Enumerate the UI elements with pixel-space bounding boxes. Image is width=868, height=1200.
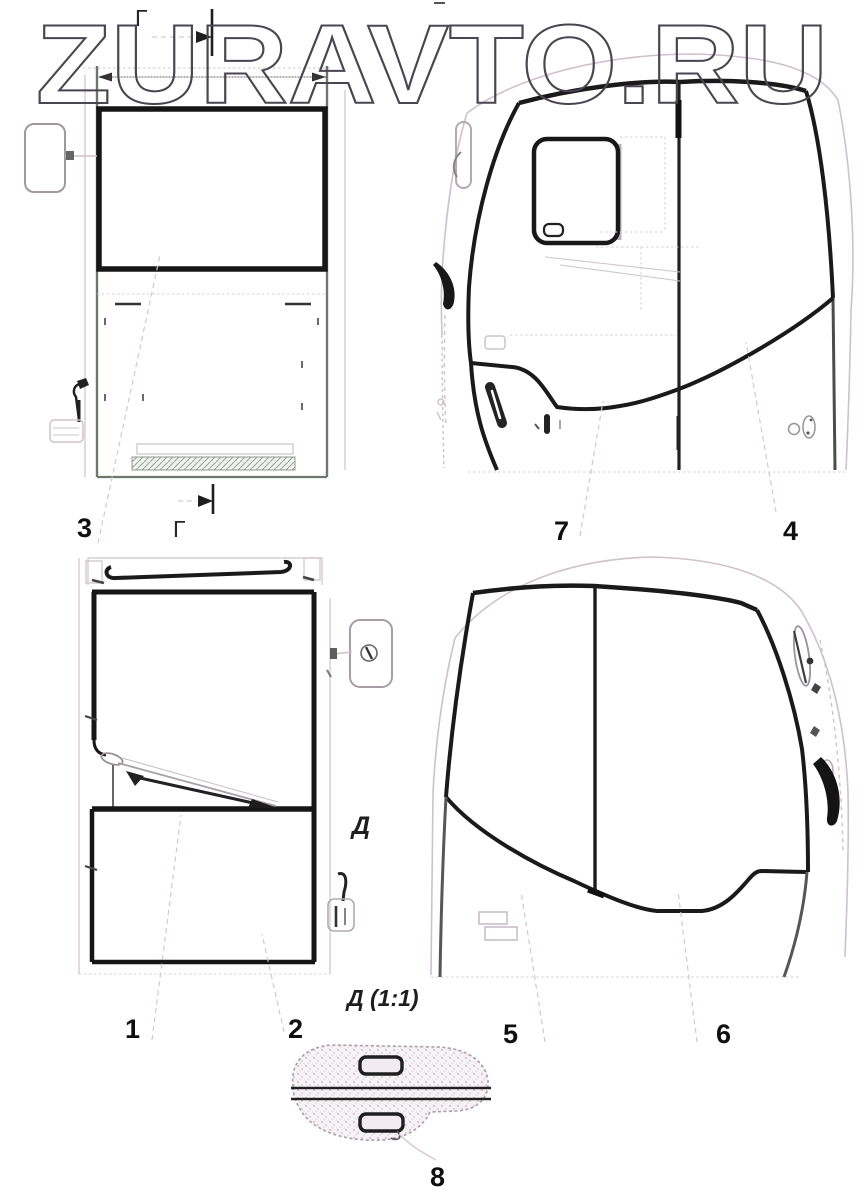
seal-clip-lower — [360, 1114, 403, 1131]
mirror-left — [25, 124, 97, 192]
door-check-strap — [328, 874, 354, 931]
seal-corner-mark-lower — [813, 757, 840, 826]
seal-clip-upper — [360, 1057, 402, 1074]
fastener-marks — [789, 416, 816, 438]
callout-6: 6 — [716, 1019, 731, 1049]
window-regulator-arm — [100, 751, 278, 808]
mirror-right — [327, 620, 392, 687]
belt-line — [471, 298, 833, 409]
callout-3: 3 — [77, 513, 92, 543]
callout-1: 1 — [125, 1014, 140, 1044]
leader-line-2 — [262, 934, 284, 1032]
window-opening — [99, 109, 325, 269]
callout-2: 2 — [288, 1014, 303, 1044]
drip-channel — [92, 562, 314, 583]
callout-8: 8 — [430, 1162, 445, 1192]
section-label-d: Д — [350, 812, 370, 840]
door-sill-hatch — [132, 457, 295, 470]
section-mark-g-bottom: Г — [173, 484, 213, 542]
diagram-page: Г Г — [0, 0, 868, 1200]
callout-5: 5 — [503, 1019, 518, 1049]
seal-corner-mark — [433, 262, 455, 309]
leader-line-4 — [746, 342, 776, 512]
door-check-bracket — [50, 378, 89, 442]
watermark: ZURAVTO.RU — [36, 2, 828, 127]
vent-window-latch — [544, 224, 563, 236]
leader-line-6 — [678, 891, 697, 1042]
leader-line-3 — [98, 255, 160, 543]
door-assembly-diagram: Г Г — [0, 0, 868, 1200]
leader-line-8 — [399, 1134, 436, 1160]
detail-view-d: Д (1:1) — [291, 985, 491, 1160]
window-frame — [92, 592, 316, 962]
view-door-frame-front: Д — [79, 558, 392, 1040]
vent-window — [534, 139, 619, 243]
view-door-seal-side — [431, 557, 848, 1042]
belt-line-seal — [446, 797, 806, 911]
door-handle — [485, 336, 560, 431]
hinge-hardware-left — [433, 122, 471, 425]
watermark-text: ZURAVTO.RU — [36, 2, 828, 127]
callout-7: 7 — [554, 516, 569, 546]
leader-line-7 — [580, 401, 603, 536]
section-label-g-bottom: Г — [173, 516, 186, 542]
callout-4: 4 — [783, 516, 798, 546]
leader-line-5 — [521, 891, 545, 1042]
leader-line-1 — [152, 815, 181, 1040]
detail-title: Д (1:1) — [345, 985, 419, 1011]
